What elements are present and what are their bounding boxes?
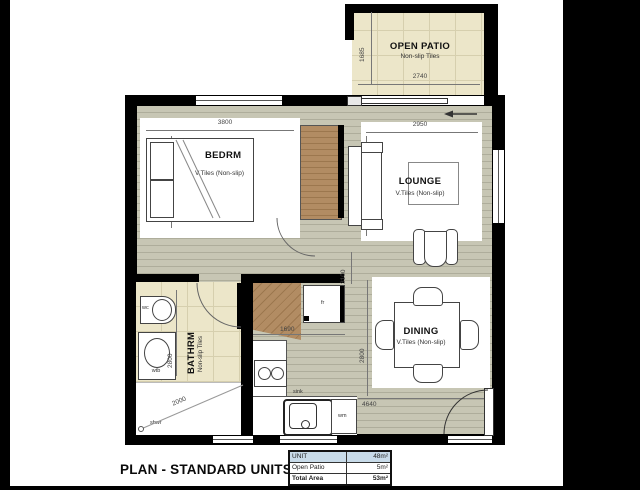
area-table-value: 48m² — [347, 452, 390, 462]
bathroom-door-swing-arc — [197, 283, 241, 327]
area-table-label: Open Patio — [290, 463, 347, 473]
bedroom-door-swing-arc — [277, 218, 315, 256]
area-table-value: 53m² — [347, 474, 390, 484]
bed-fold-line-1 — [176, 140, 213, 218]
slider-direction-arrow-icon — [444, 111, 453, 118]
entry-door-swing-arc — [444, 390, 488, 434]
area-table-label: Total Area — [290, 474, 347, 484]
bed-fold-line-2 — [183, 140, 220, 218]
plan-title: PLAN - STANDARD UNITS — [120, 462, 292, 477]
area-table-row-total: Total Area 53m² — [290, 473, 390, 484]
area-table-row-patio: Open Patio 5m² — [290, 462, 390, 473]
area-table: UNIT 48m² Open Patio 5m² Total Area 53m² — [288, 450, 392, 486]
shower-dim-line — [141, 385, 243, 429]
area-table-row-unit: UNIT 48m² — [290, 452, 390, 462]
floor-plan-canvas: 1685 2740 OPEN PATIO Non-slip Tiles 3800… — [0, 0, 640, 490]
linework-overlay — [0, 0, 640, 490]
shower-drain — [139, 427, 144, 432]
area-table-value: 5m² — [347, 463, 390, 473]
area-table-label: UNIT — [290, 452, 347, 462]
